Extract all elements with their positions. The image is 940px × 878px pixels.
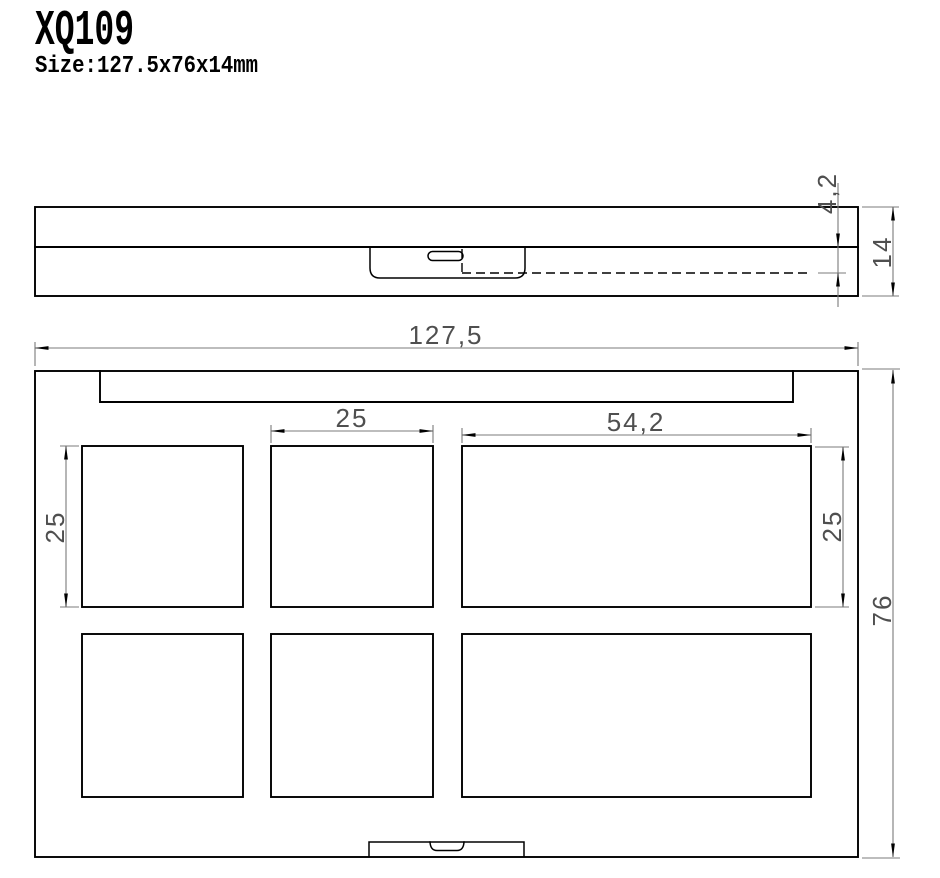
title-block: XQ109 Size:127.5x76x14mm — [35, 3, 258, 80]
dim-total-width-value: 127,5 — [408, 320, 483, 350]
dim-small-pan-width-value: 25 — [336, 403, 369, 433]
dim-large-pan-height-value: 25 — [817, 510, 847, 543]
dim-total-depth: 76 — [862, 369, 900, 858]
dim-total-height: 14 — [862, 207, 899, 296]
top-view: 127,5 25 54,2 25 25 — [35, 320, 900, 858]
dim-small-pan-height-value: 25 — [40, 511, 70, 544]
dim-large-pan-width-value: 54,2 — [607, 407, 666, 437]
dim-latch-depth-value: 4,2 — [812, 172, 842, 214]
model-number: XQ109 — [35, 3, 134, 60]
technical-drawing: XQ109 Size:127.5x76x14mm 4,2 14 — [0, 0, 940, 878]
dim-total-depth-value: 76 — [867, 594, 897, 627]
top-view-outline — [35, 371, 858, 857]
drawing-sheet: XQ109 Size:127.5x76x14mm 4,2 14 — [0, 0, 940, 878]
side-view: 4,2 14 — [35, 172, 899, 307]
dim-total-height-value: 14 — [867, 236, 897, 269]
size-label: Size:127.5x76x14mm — [35, 53, 258, 80]
dim-total-width: 127,5 — [35, 320, 858, 366]
